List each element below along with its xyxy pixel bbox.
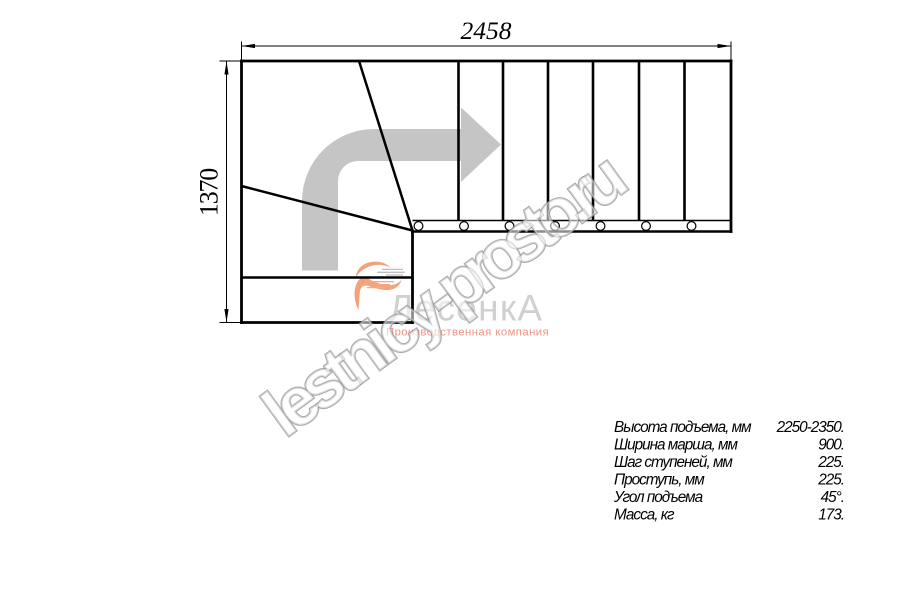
svg-text:225.: 225. [817,454,844,471]
svg-text:1370: 1370 [195,168,224,216]
svg-text:2250-2350.: 2250-2350. [776,419,844,436]
svg-text:2458: 2458 [461,16,512,45]
svg-text:173.: 173. [818,507,844,524]
svg-text:Ширина марша, мм: Ширина марша, мм [614,437,738,454]
svg-text:Масса, кг: Масса, кг [614,507,675,524]
svg-text:Угол подъема: Угол подъема [613,489,703,506]
svg-text:Шаг ступеней, мм: Шаг ступеней, мм [614,454,733,471]
svg-text:45°.: 45°. [821,489,844,506]
svg-text:Проступь, мм: Проступь, мм [614,472,705,489]
svg-text:Высота подъема, мм: Высота подъема, мм [614,419,752,436]
svg-text:900.: 900. [818,437,844,454]
svg-text:225.: 225. [817,472,844,489]
